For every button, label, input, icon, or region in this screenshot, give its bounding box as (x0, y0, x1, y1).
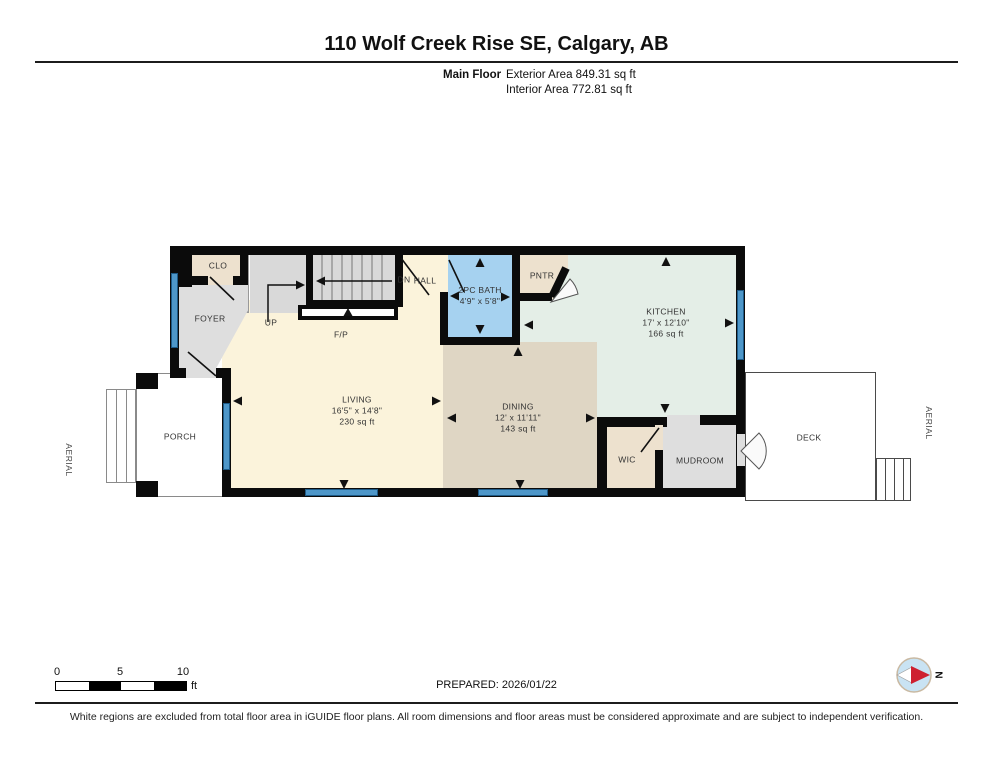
deck-door-opening (737, 434, 745, 466)
room-kitchen (597, 342, 740, 418)
window-kitchen (737, 290, 744, 360)
porch-label: PORCH (164, 432, 196, 443)
wall-stair-divider (306, 246, 313, 307)
north-label: N (932, 671, 943, 678)
wic-label: WIC (618, 455, 635, 466)
scale-tick-5: 5 (114, 666, 126, 678)
aerial-label-left: AERIAL (64, 443, 74, 476)
bath-door-opening (440, 255, 448, 292)
wall-pantry-bottom (520, 293, 552, 301)
living-name: LIVING (332, 395, 383, 406)
scale-tick-10: 10 (175, 666, 191, 678)
mudroom-label: MUDROOM (676, 456, 724, 467)
living-label: LIVING 16'5" x 14'8" 230 sq ft (332, 395, 383, 428)
kitchen-area: 166 sq ft (642, 329, 689, 340)
wall-top (170, 246, 745, 255)
dn-label: DN (398, 275, 411, 286)
living-dims: 16'5" x 14'8" (332, 406, 383, 417)
kitchen-label: KITCHEN 17' x 12'10" 166 sq ft (642, 307, 689, 340)
dining-dims: 12' x 11'11" (495, 413, 541, 424)
front-door-opening (186, 368, 216, 378)
porch-step-line (126, 390, 127, 482)
mudroom-opening (667, 415, 700, 427)
floor-label: Main Floor (443, 69, 501, 81)
interior-area: Interior Area 772.81 sq ft (506, 84, 632, 96)
exterior-area: Exterior Area 849.31 sq ft (506, 69, 636, 81)
kitchen-dims: 17' x 12'10" (642, 318, 689, 329)
closet-door-opening (208, 276, 233, 285)
window-living-left (223, 403, 230, 470)
up-label: UP (265, 318, 277, 329)
header-divider (35, 61, 958, 63)
wall-wic-mudroom-divider (655, 450, 663, 490)
kitchen-name: KITCHEN (642, 307, 689, 318)
fireplace-label: F/P (334, 330, 348, 341)
foyer-label: FOYER (195, 314, 226, 325)
footer-divider (35, 702, 958, 704)
dining-label: DINING 12' x 11'11" 143 sq ft (495, 402, 541, 435)
page-title: 110 Wolf Creek Rise SE, Calgary, AB (0, 33, 993, 56)
wall-closet-right (240, 246, 248, 285)
deck-step-line (885, 459, 886, 500)
bath-label: 2PC BATH 4'9" x 5'8" (458, 285, 501, 307)
porch-step-line (116, 390, 117, 482)
scale-tick-0: 0 (51, 666, 63, 678)
window-living-bottom (305, 489, 378, 496)
window-foyer (171, 273, 178, 348)
porch-steps (106, 389, 136, 483)
deck-label: DECK (797, 433, 822, 444)
wall-bath-bottom (440, 337, 520, 345)
disclaimer: White regions are excluded from total fl… (0, 711, 993, 723)
porch-post (136, 481, 158, 497)
bath-name: 2PC BATH (458, 285, 501, 296)
wall-mudroom-top (700, 415, 736, 425)
window-dining-bottom (478, 489, 548, 496)
wic-door-opening (655, 425, 663, 450)
pantry-label: PNTR (530, 271, 554, 282)
stairwell (313, 255, 395, 300)
bath-dims: 4'9" x 5'8" (458, 296, 501, 307)
deck-step-line (903, 459, 904, 500)
closet-label: CLO (209, 261, 227, 272)
fireplace-box (298, 305, 398, 320)
porch-post (136, 373, 158, 389)
hall-label: HALL (414, 276, 436, 287)
aerial-label-right: AERIAL (924, 406, 934, 439)
room-hall (403, 255, 443, 490)
wall-closet (192, 276, 208, 285)
wall-bath-right (512, 246, 520, 345)
deck-step-line (894, 459, 895, 500)
dining-area: 143 sq ft (495, 424, 541, 435)
wall-wic-left (597, 417, 607, 497)
floorplan-page: 110 Wolf Creek Rise SE, Calgary, AB Main… (0, 0, 993, 768)
deck-steps (876, 458, 911, 501)
living-area: 230 sq ft (332, 417, 383, 428)
prepared-date: PREPARED: 2026/01/22 (0, 679, 993, 691)
dining-name: DINING (495, 402, 541, 413)
